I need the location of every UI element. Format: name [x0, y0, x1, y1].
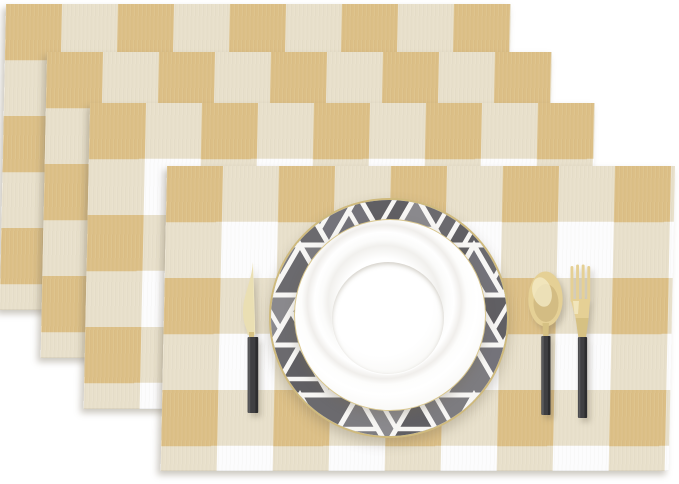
spoon-handle-highlight: [542, 336, 544, 415]
fork-handle-edge: [585, 337, 588, 418]
spoon-neck: [543, 323, 550, 338]
plate-well: [332, 262, 444, 374]
knife: [240, 260, 262, 418]
spoon: [526, 268, 566, 418]
fork-shoulder-highlight: [573, 301, 579, 314]
fork-tine-4: [587, 266, 590, 302]
fork: [567, 262, 597, 420]
knife-handle-edge: [255, 337, 258, 413]
fork-neck: [576, 318, 589, 339]
fork-tine-2: [576, 265, 579, 303]
fork-tine-1: [571, 266, 574, 302]
product-photo-stage: [0, 0, 679, 484]
fork-tine-3: [582, 265, 585, 303]
dinner-plate: [294, 219, 486, 411]
fork-handle-highlight: [579, 337, 581, 418]
spoon-handle-edge: [548, 336, 551, 415]
knife-handle-highlight: [248, 337, 250, 413]
